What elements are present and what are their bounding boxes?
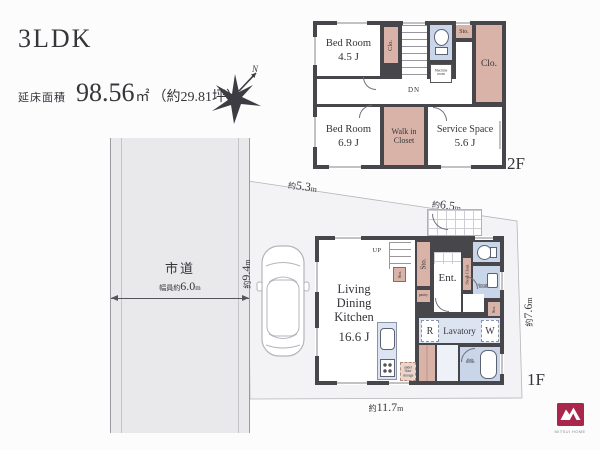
room-name: Bed Room: [326, 38, 371, 49]
road-width-unit: m: [195, 284, 200, 292]
toilet-1f: [473, 242, 500, 262]
road-width-label: 幅員約6.0m: [111, 280, 249, 293]
floor-plan-2f: Bed Room 4.5 J Clo. DN Machine room Sto.…: [313, 21, 506, 169]
floor-plan-1f: Living Dining Kitchen 16.6 J UP Sto. Sto…: [315, 236, 504, 385]
toilet-tank-icon: [435, 47, 448, 55]
storage-tall-1f: Sto.: [417, 242, 430, 286]
machine-room-label: Machine room: [434, 70, 448, 78]
stairs-2f: [402, 25, 427, 84]
pantry-label: pantry: [419, 294, 428, 298]
hall-powder-front: [463, 294, 484, 312]
north-letter: N: [251, 64, 259, 74]
floor-label-2f: 2F: [507, 154, 525, 173]
window-2f: [403, 21, 425, 25]
storage-right-1f: Sto.: [488, 302, 500, 316]
road-width-arrow-left: [111, 295, 118, 301]
window-1f: [315, 262, 319, 292]
ldk-line1: Living: [321, 282, 387, 296]
floor-area-unit: ㎡: [136, 86, 150, 106]
dimension-left-side: 約9.4m: [237, 254, 255, 294]
road-width-prefix: 幅員約: [159, 284, 180, 292]
floorplan-page: 3LDK 延床面積 98.56 ㎡ （約29.81坪） N 市道 幅員約6.0m: [0, 0, 600, 450]
room-name: Service Space: [437, 124, 493, 135]
mitsui-home-logo-icon: [557, 403, 584, 427]
dim-value: 9.4: [239, 266, 253, 281]
room-size: 6.9 J: [338, 137, 359, 149]
brand-logo-text: MITSUI HOME: [552, 429, 588, 434]
under-floor-storage: under floor storage: [400, 362, 416, 381]
washer-label: W: [485, 326, 494, 337]
dim-value: 11.7: [377, 400, 398, 414]
dim-prefix: 約: [243, 281, 252, 289]
tall-cabinet-1f: [419, 345, 435, 381]
hall-2f-right: [456, 42, 472, 82]
window-2f: [313, 117, 317, 147]
toilet-2f: [430, 25, 452, 60]
dimension-top-left: 約5.3m: [287, 175, 318, 197]
window-2f: [456, 21, 470, 25]
dim-unit: m: [397, 404, 403, 413]
road-width-dimension-line: [111, 298, 249, 299]
storage-label: Sto.: [397, 271, 402, 278]
room-size: 5.6 J: [455, 137, 476, 149]
dim-unit: m: [243, 259, 252, 265]
closet-right-label: Clo.: [481, 59, 497, 69]
bathtub-icon: [480, 350, 497, 379]
window-1f: [475, 236, 493, 240]
road-width-arrow-right: [242, 295, 249, 301]
room-name: Bed Room: [326, 124, 371, 135]
toilet-bowl-icon: [434, 29, 449, 46]
kitchen-counter: [377, 322, 397, 380]
lot-boundary: [0, 0, 600, 450]
room-bedroom-4-5: Bed Room 4.5 J: [317, 25, 380, 76]
ldk-line2: Dining: [321, 296, 387, 310]
window-2f: [498, 121, 502, 149]
window-2f: [337, 21, 367, 25]
road-name: 市道: [111, 262, 249, 277]
dim-unit: m: [310, 184, 317, 194]
window-1f: [335, 236, 361, 240]
pantry-1f: pantry: [417, 290, 430, 302]
under-floor-storage-label: under floor storage: [403, 366, 413, 377]
north-compass-icon: N: [203, 62, 267, 126]
road-area: 市道 幅員約6.0m: [110, 138, 250, 433]
dim-prefix: 約: [525, 319, 534, 327]
brand-logo: MITSUI HOME: [552, 403, 588, 434]
storage-label: Sto.: [491, 305, 496, 312]
entrance-label: Ent.: [434, 272, 461, 284]
kitchen-sink-icon: [380, 328, 395, 350]
machine-room-2f: Machine room: [430, 64, 452, 83]
sink-icon: [487, 273, 498, 288]
room-size: 4.5 J: [338, 51, 359, 63]
closet-strip-label: Clo.: [388, 39, 395, 50]
refrigerator-box: R: [421, 320, 439, 342]
washer-box: W: [481, 320, 499, 342]
lavatory-label: Lavatory: [443, 326, 475, 336]
floor-area-value: 98.56: [76, 78, 135, 108]
dim-prefix: 約: [369, 404, 377, 413]
walk-in-closet-2f: Walk in Closet: [384, 107, 424, 165]
window-1f: [315, 328, 319, 356]
storage-2f: Sto.: [456, 25, 472, 38]
dim-value: 7.6: [521, 304, 535, 319]
closet-strip-2f: Clo.: [384, 27, 398, 63]
dimension-right-side: 約7.6m: [519, 292, 537, 332]
floor-label-1f: 1F: [527, 370, 545, 389]
dimension-bottom: 約11.7m: [360, 398, 412, 416]
stairs-up-label: UP: [367, 247, 387, 254]
toilet-tank-icon: [490, 247, 497, 258]
window-1f: [500, 272, 504, 290]
window-2f: [313, 37, 317, 65]
closet-right-2f: Clo.: [476, 25, 502, 102]
dim-unit: m: [525, 297, 534, 303]
wic-line1: Walk in: [392, 127, 417, 136]
stairs-down-label: DN: [397, 87, 431, 95]
window-1f: [500, 354, 504, 374]
page-title: 3LDK: [18, 24, 92, 53]
storage-label: Sto.: [420, 258, 428, 269]
stove-icon: [380, 359, 395, 377]
window-1f: [337, 381, 367, 385]
car-icon: [256, 242, 310, 360]
wic-line2: Closet: [394, 136, 414, 145]
lavatory-extension: [437, 345, 458, 381]
entrance-tile: [434, 252, 461, 264]
window-1f: [389, 381, 409, 385]
storage-small-1f: Sto.: [393, 267, 406, 282]
stairs-1f: [389, 242, 411, 269]
refrigerator-label: R: [427, 326, 434, 337]
window-2f: [329, 165, 361, 169]
storage-label: Sto.: [459, 29, 469, 35]
window-2f: [441, 165, 471, 169]
floor-area-label: 延床面積: [18, 89, 66, 105]
road-width-value: 6.0: [180, 279, 195, 293]
